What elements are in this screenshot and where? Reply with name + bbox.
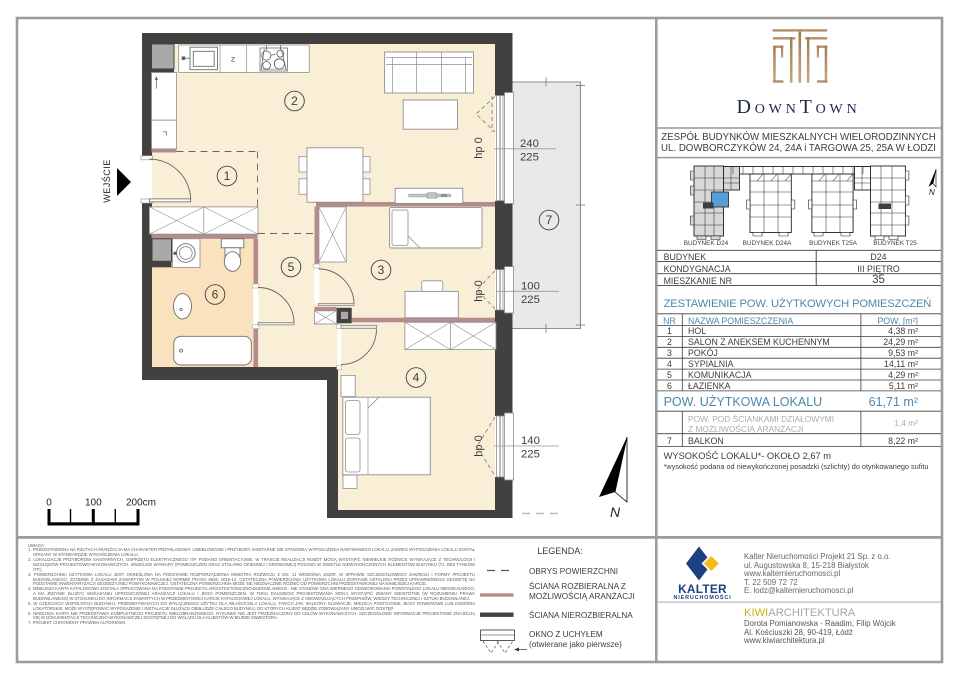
- svg-text:3: 3: [378, 263, 385, 277]
- svg-text:100: 100: [521, 281, 540, 293]
- svg-text:N: N: [610, 504, 621, 520]
- svg-text:1: 1: [224, 169, 231, 183]
- svg-text:200cm: 200cm: [126, 498, 156, 509]
- svg-text:6: 6: [212, 288, 219, 302]
- svg-text:N: N: [929, 188, 935, 197]
- svg-text:225: 225: [520, 151, 539, 163]
- svg-text:0: 0: [46, 498, 52, 509]
- svg-text:hp 0: hp 0: [473, 137, 485, 158]
- svg-text:100: 100: [85, 498, 102, 509]
- svg-text:225: 225: [521, 294, 540, 306]
- svg-text:4: 4: [413, 371, 420, 385]
- svg-text:7: 7: [546, 213, 553, 227]
- svg-text:240: 240: [520, 138, 539, 150]
- svg-text:2: 2: [291, 94, 298, 108]
- svg-text:hp 0: hp 0: [473, 435, 485, 456]
- svg-text:225: 225: [521, 449, 540, 461]
- svg-text:5: 5: [288, 260, 295, 274]
- svg-text:140: 140: [521, 435, 540, 447]
- svg-text:WEJŚCIE: WEJŚCIE: [101, 159, 112, 203]
- svg-text:Z: Z: [231, 57, 235, 64]
- svg-text:hp 0: hp 0: [473, 280, 485, 301]
